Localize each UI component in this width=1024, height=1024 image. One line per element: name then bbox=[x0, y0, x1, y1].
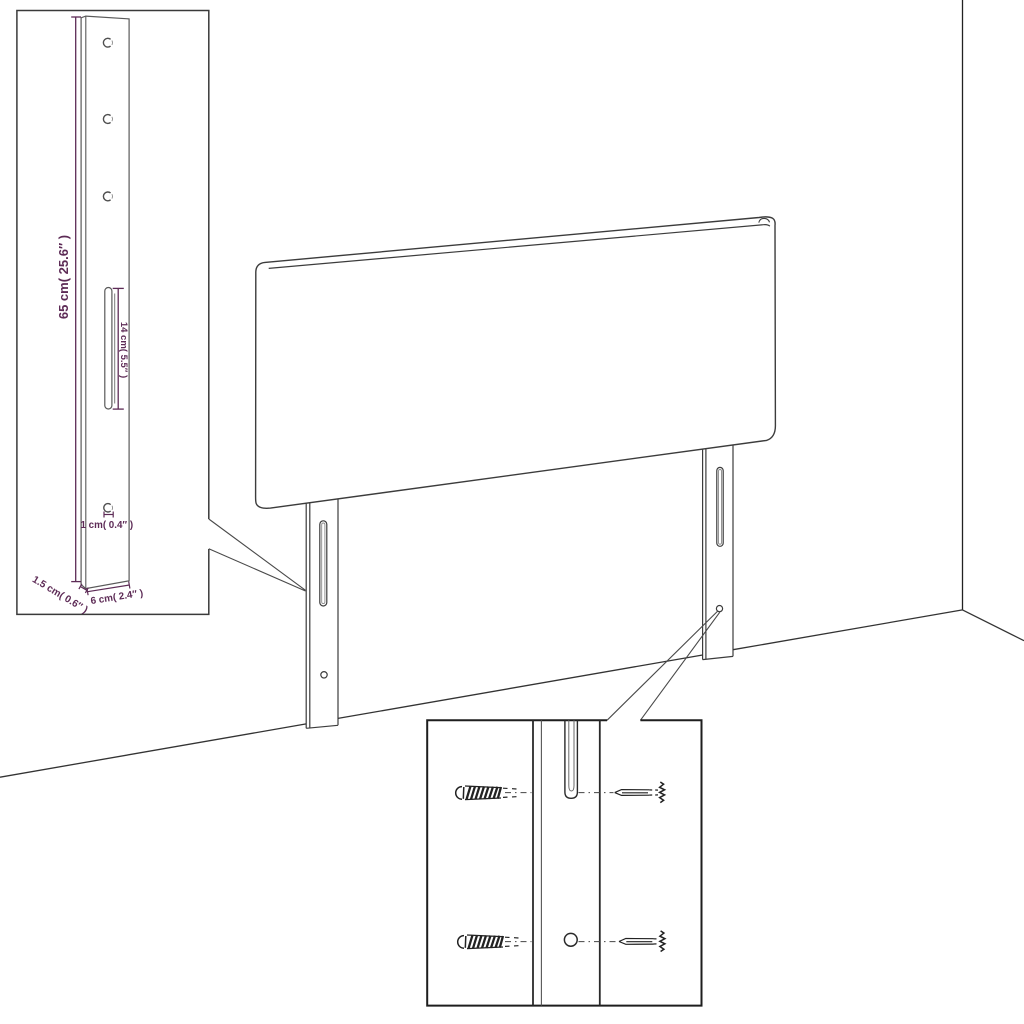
svg-text:14 cm( 5.5″ ): 14 cm( 5.5″ ) bbox=[118, 322, 129, 378]
svg-text:65 cm( 25.6″ ): 65 cm( 25.6″ ) bbox=[56, 235, 71, 319]
svg-text:6 cm( 2.4″ ): 6 cm( 2.4″ ) bbox=[90, 588, 144, 607]
svg-text:1 cm( 0.4″ ): 1 cm( 0.4″ ) bbox=[80, 520, 133, 531]
